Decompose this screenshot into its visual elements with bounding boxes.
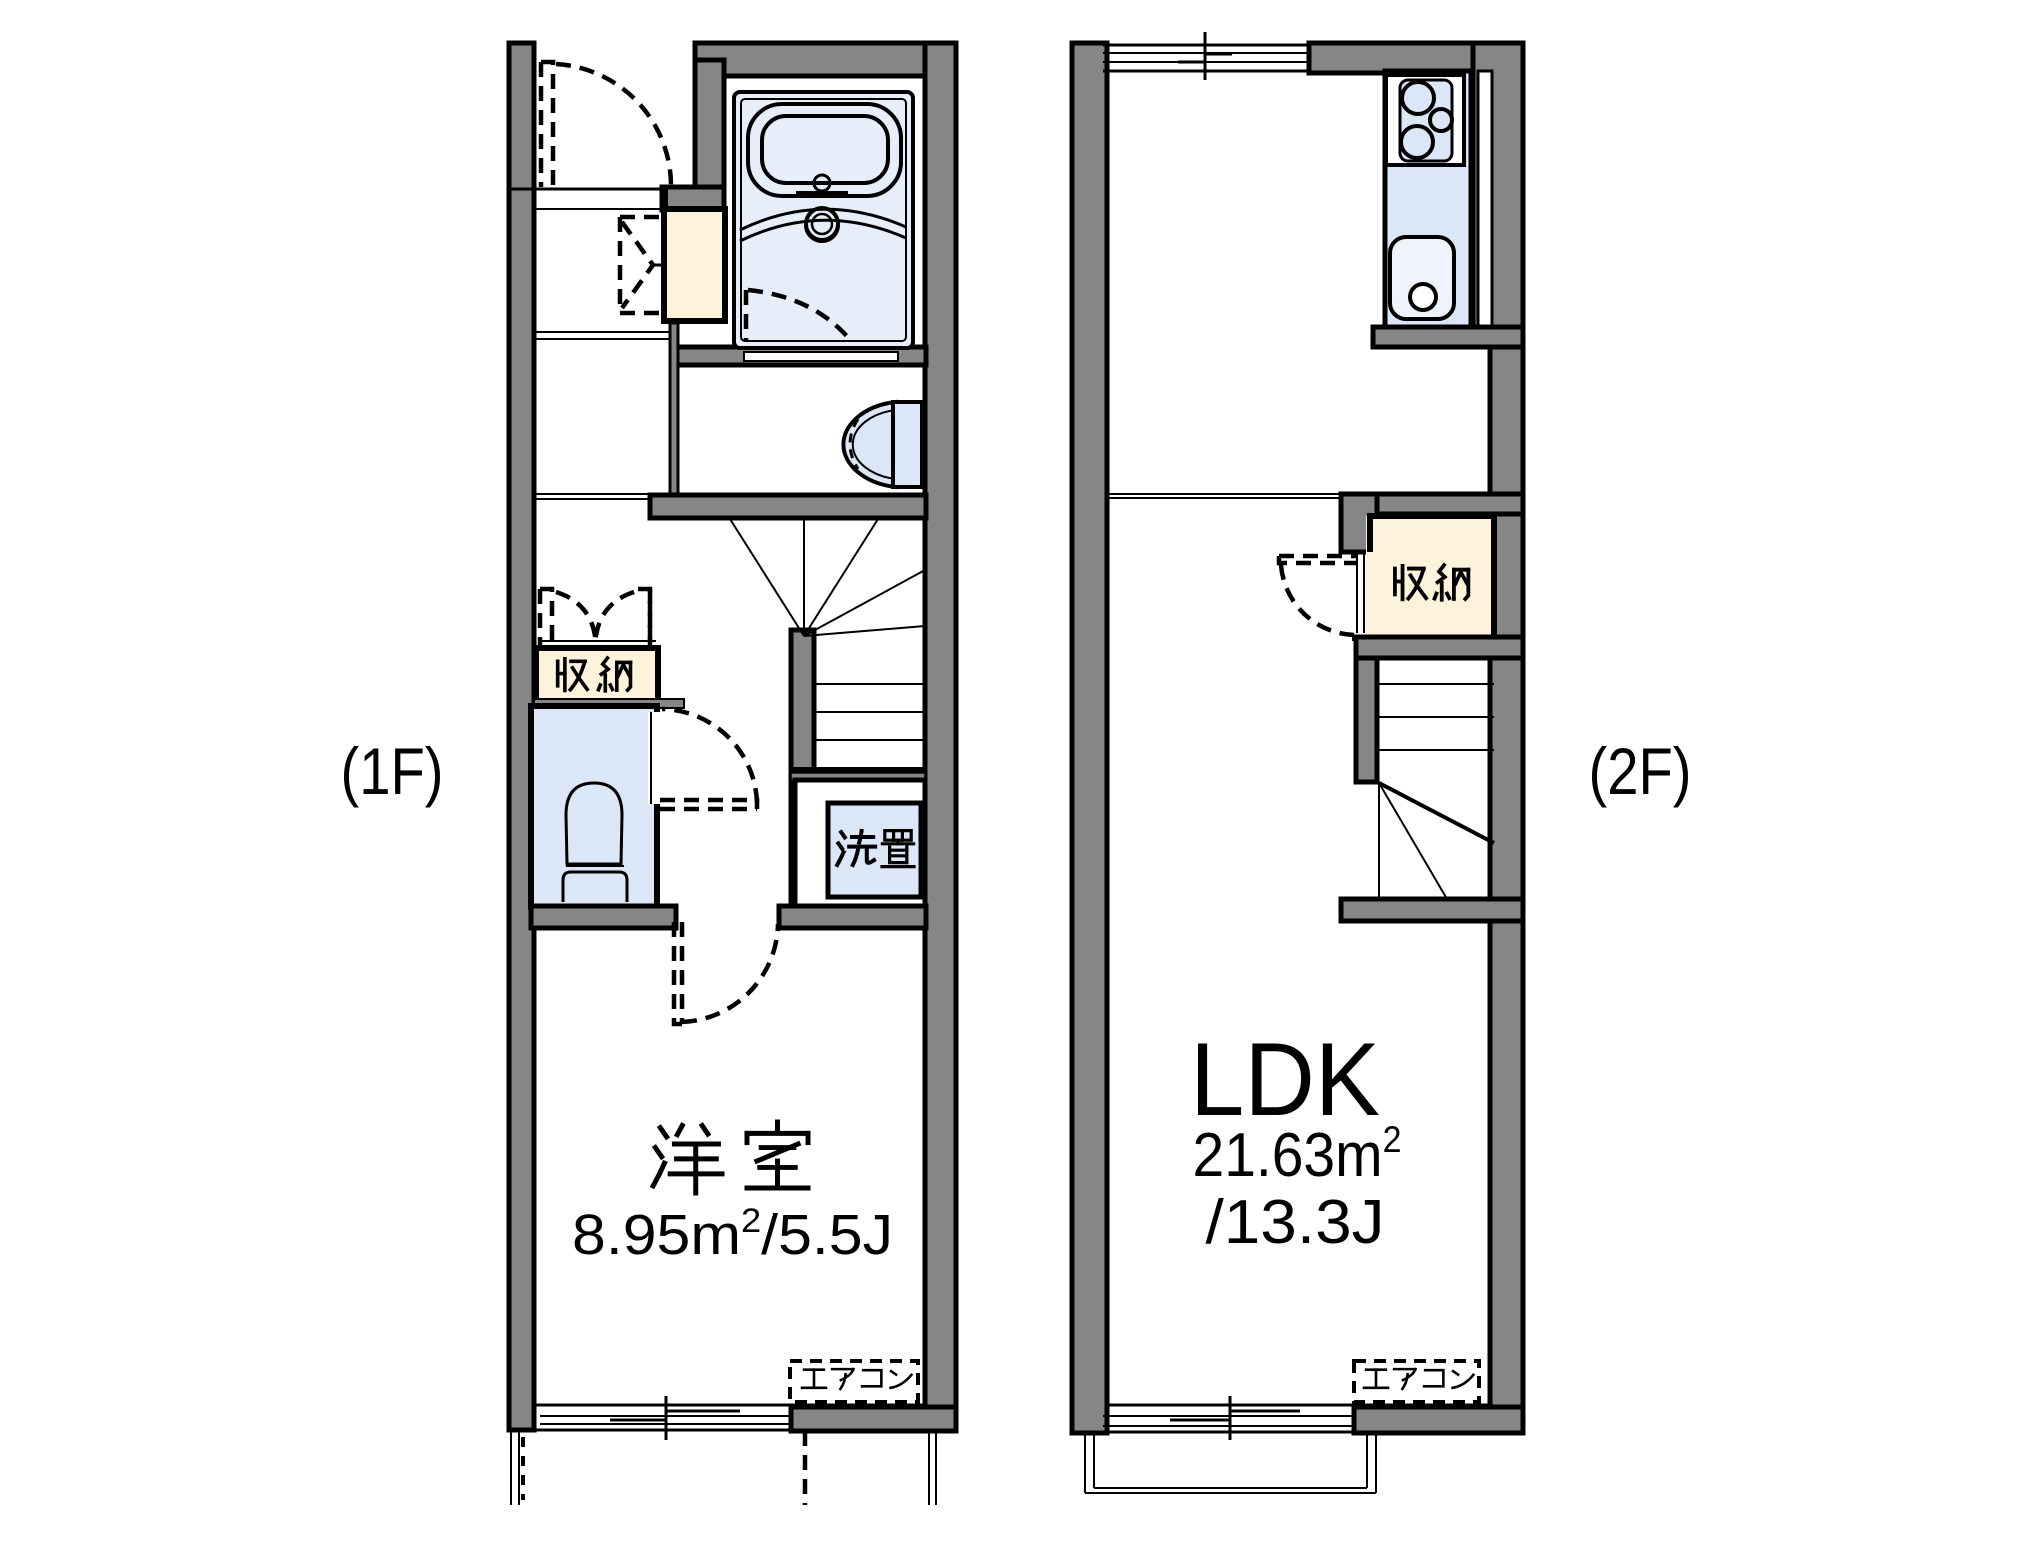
svg-text:21.63m2: 21.63m2 [1193, 1119, 1402, 1190]
svg-text:8.95m2/5.5J: 8.95m2/5.5J [572, 1202, 893, 1267]
svg-text:/13.3J: /13.3J [1206, 1188, 1385, 1257]
svg-text:(2F): (2F) [1589, 734, 1692, 808]
svg-text:(1F): (1F) [341, 734, 444, 808]
